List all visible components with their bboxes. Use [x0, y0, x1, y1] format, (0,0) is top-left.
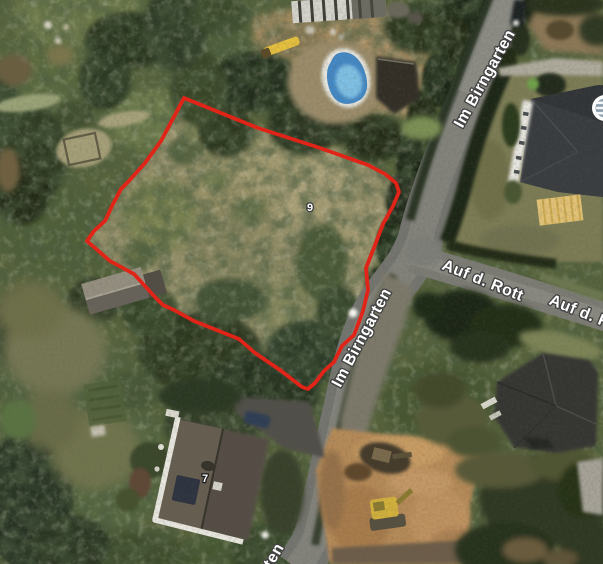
svg-text:9: 9	[307, 202, 313, 214]
svg-text:7: 7	[202, 473, 208, 485]
